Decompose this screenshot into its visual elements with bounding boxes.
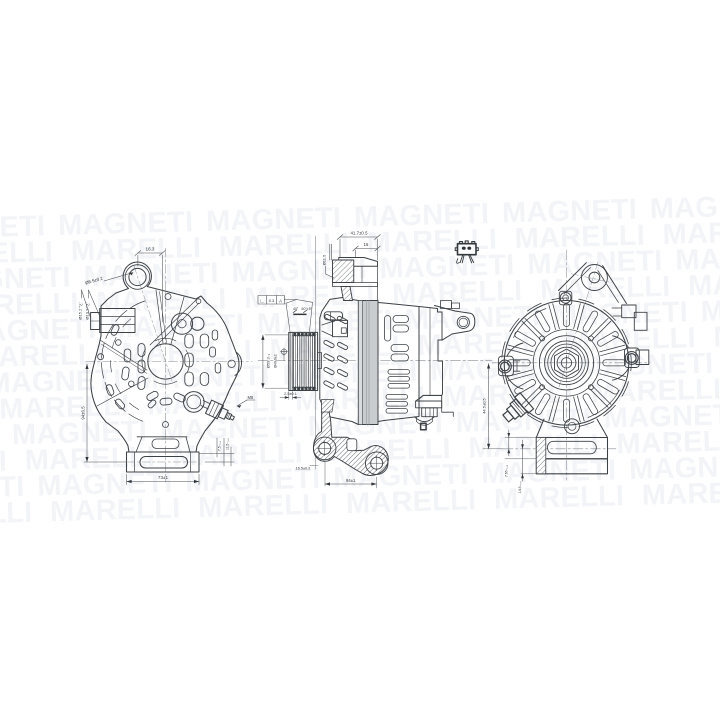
svg-text:0.3: 0.3 (269, 298, 275, 303)
svg-text:A: A (279, 298, 282, 303)
svg-text:7.65₊₀.₂: 7.65₊₀.₂ (504, 464, 508, 477)
svg-text:41.7±0.5: 41.7±0.5 (350, 231, 368, 236)
svg-text:Ø11.5: Ø11.5 (322, 254, 327, 265)
svg-text:44.5±0.5: 44.5±0.5 (482, 397, 487, 413)
svg-text:Ø15.2⁺⁽ƹ⁾: Ø15.2⁺⁽ƹ⁾ (78, 302, 83, 319)
svg-text:MARELLI: MARELLI (641, 476, 720, 512)
svg-text:MARELLI: MARELLI (0, 497, 33, 533)
svg-text:∟: ∟ (260, 298, 265, 304)
svg-text:MARELLI: MARELLI (494, 480, 625, 516)
svg-text:11.5₋₀.₅: 11.5₋₀.₅ (226, 437, 230, 449)
svg-text:Ø59.3₋₁: Ø59.3₋₁ (265, 353, 270, 368)
svg-text:MARELLI: MARELLI (198, 488, 329, 524)
svg-text:MARELLI: MARELLI (713, 318, 720, 354)
svg-text:16.5±0.2: 16.5±0.2 (296, 467, 311, 471)
svg-text:94±0.5: 94±0.5 (81, 406, 86, 420)
svg-text:73±1: 73±1 (158, 475, 169, 480)
svg-text:7.5₋₀.₅: 7.5₋₀.₅ (218, 440, 222, 451)
svg-text:Ø13.2⁺⁽ƹ⁾: Ø13.2⁺⁽ƹ⁾ (85, 302, 90, 319)
svg-text:60°±5°: 60°±5° (302, 307, 313, 311)
svg-text:16: 16 (364, 242, 369, 247)
svg-text:MARELLI: MARELLI (50, 493, 181, 529)
svg-text:16.3: 16.3 (146, 247, 155, 252)
svg-text:M8: M8 (248, 395, 254, 400)
svg-text:2.5±0.1: 2.5±0.1 (284, 392, 297, 396)
svg-text:Ø49.6±1: Ø49.6±1 (273, 354, 277, 368)
svg-text:14.5₊₀.₅: 14.5₊₀.₅ (518, 480, 522, 493)
svg-text:94±1: 94±1 (346, 478, 356, 483)
svg-text:MARELLI: MARELLI (346, 484, 477, 520)
